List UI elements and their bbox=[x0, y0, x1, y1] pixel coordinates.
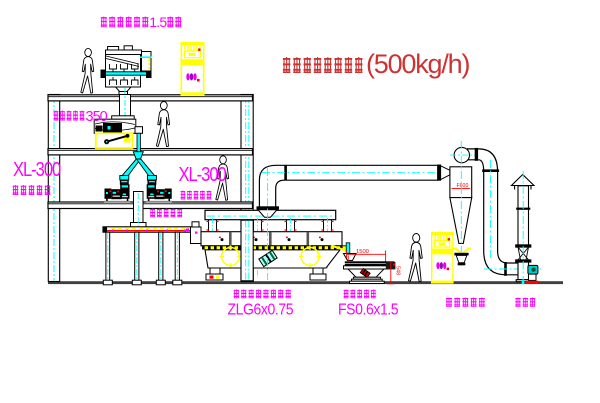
svg-text:XL-300: XL-300 bbox=[13, 157, 61, 180]
svg-text:1.5: 1.5 bbox=[149, 14, 167, 30]
svg-text:XL-300: XL-300 bbox=[179, 162, 227, 185]
svg-text:FS0.6x1.5: FS0.6x1.5 bbox=[338, 302, 398, 319]
svg-text:F600: F600 bbox=[457, 183, 469, 189]
svg-text:1500: 1500 bbox=[356, 249, 369, 255]
svg-text:350: 350 bbox=[86, 109, 108, 125]
svg-text:(500kg/h): (500kg/h) bbox=[366, 49, 469, 79]
svg-text:ZLG6x0.75: ZLG6x0.75 bbox=[228, 302, 294, 319]
svg-text:548: 548 bbox=[395, 266, 401, 275]
